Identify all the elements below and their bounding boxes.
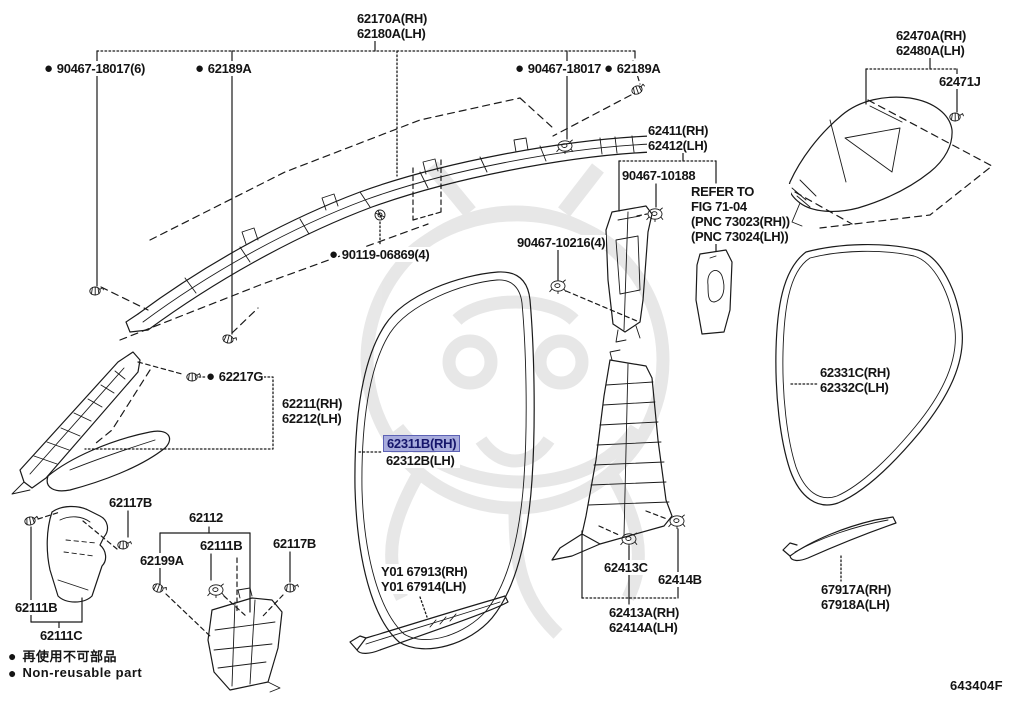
non-reusable-legend: ● 再使用不可部品 ● Non-reusable part [8,647,142,681]
part-number-text: 62112 [188,510,224,525]
part-number-text: 62189A [616,61,662,76]
part-label-62331c-62332c[interactable]: 62331C(RH)62332C(LH) [819,365,891,395]
non-reusable-bullet-icon: ● [206,369,215,384]
diagram-code: 643404F [950,678,1003,693]
part-number-text: 62470A(RH) [895,28,967,43]
part-number-text: 62117B [108,495,153,510]
part-number-text: 62170A(RH) [356,11,428,26]
part-label-62211-62212[interactable]: 62211(RH)62212(LH) [281,396,343,426]
part-number-text: 62212(LH) [281,411,343,426]
parts-diagram-page: 62170A(RH)62180A(LH)●90467-18017(6)●6218… [0,0,1024,707]
part-label-62117b-top[interactable]: 62117B [108,495,153,510]
part-number-text-highlighted: 62311B(RH) [383,435,460,452]
non-reusable-bullet-icon: ● [195,61,204,76]
non-reusable-bullet-icon: ● [329,247,338,262]
part-number-text: 62312B(LH) [385,453,460,468]
part-number-text: 90467-10188 [621,168,696,183]
non-reusable-bullet-icon: ● [8,665,16,681]
part-label-62413a-62414a[interactable]: 62413A(RH)62414A(LH) [608,605,680,635]
non-reusable-bullet-icon: ● [604,61,613,76]
part-label-62111b-left[interactable]: 62111B [14,600,58,615]
part-label-62311b-62312b[interactable]: 62311B(RH)62312B(LH) [385,437,460,468]
part-number-text: 62471J [938,74,982,89]
part-label-62413c[interactable]: 62413C [603,560,649,575]
part-label-62111c[interactable]: 62111C [39,628,83,643]
part-number-text: 62414A(LH) [608,620,680,635]
part-number-text: 62480A(LH) [895,43,967,58]
part-label-62217g[interactable]: ●62217G [206,369,264,384]
part-number-text: 62180A(LH) [356,26,428,41]
part-label-62170a-62180a[interactable]: 62170A(RH)62180A(LH) [356,11,428,41]
part-number-text: 62189A [207,61,253,76]
part-number-text: 62413A(RH) [608,605,680,620]
part-number-text: FIG 71-04 [690,199,791,214]
part-label-62414b[interactable]: 62414B [657,572,703,587]
part-label-y01-67913-67914[interactable]: Y01 67913(RH)Y01 67914(LH) [380,564,468,594]
part-number-text: 62331C(RH) [819,365,891,380]
part-label-62199a[interactable]: 62199A [139,553,185,568]
part-number-text: 90467-18017 [527,61,602,76]
part-label-62189a-front[interactable]: ●62189A [195,61,253,76]
part-number-text: Y01 67914(LH) [380,579,468,594]
part-number-text: 62111B [14,600,58,615]
part-number-text: (PNC 73024(LH)) [690,229,791,244]
part-label-62411-62412[interactable]: 62411(RH)62412(LH) [647,123,709,153]
part-label-90467-10216-4[interactable]: 90467-10216(4) [516,235,606,250]
legend-row-jp: ● 再使用不可部品 [8,647,142,664]
legend-en-text: Non-reusable part [22,665,142,680]
part-label-62470a-62480a[interactable]: 62470A(RH)62480A(LH) [895,28,967,58]
part-label-90119-06869-4[interactable]: ●90119-06869(4) [329,247,430,262]
part-label-refer-fig[interactable]: REFER TOFIG 71-04(PNC 73023(RH))(PNC 730… [690,184,791,244]
part-number-text: 62332C(LH) [819,380,891,395]
part-number-text: 62111B [199,538,243,553]
part-number-text: 62413C [603,560,649,575]
part-number-text: 62414B [657,572,703,587]
part-label-90467-10188[interactable]: 90467-10188 [621,168,696,183]
part-label-90467-18017-6[interactable]: ●90467-18017(6) [44,61,146,76]
part-number-text: 67917A(RH) [820,582,892,597]
part-label-62471j[interactable]: 62471J [938,74,982,89]
part-label-62112[interactable]: 62112 [188,510,224,525]
part-label-62117b-right[interactable]: 62117B [272,536,317,551]
part-number-text: 62411(RH) [647,123,709,138]
non-reusable-bullet-icon: ● [8,648,16,664]
part-number-text: 62211(RH) [281,396,343,411]
part-label-62111b-mid[interactable]: 62111B [199,538,243,553]
part-number-text: 90119-06869(4) [341,247,431,262]
non-reusable-bullet-icon: ● [515,61,524,76]
non-reusable-bullet-icon: ● [44,61,53,76]
legend-jp-text: 再使用不可部品 [22,646,117,665]
part-number-text: 67918A(LH) [820,597,892,612]
part-label-67917a-67918a[interactable]: 67917A(RH)67918A(LH) [820,582,892,612]
part-number-text: 90467-18017(6) [56,61,146,76]
part-number-text: 90467-10216(4) [516,235,606,250]
part-number-text: 62412(LH) [647,138,709,153]
part-number-text: 62111C [39,628,83,643]
part-label-90467-18017[interactable]: ●90467-18017 [515,61,602,76]
part-number-text: 62117B [272,536,317,551]
part-number-text: (PNC 73023(RH)) [690,214,791,229]
legend-row-en: ● Non-reusable part [8,664,142,681]
part-number-text: Y01 67913(RH) [380,564,468,579]
part-number-text: 62217G [218,369,264,384]
part-number-text: 62199A [139,553,185,568]
part-number-text: REFER TO [690,184,791,199]
part-label-62189a-rear[interactable]: ●62189A [604,61,662,76]
label-layer: 62170A(RH)62180A(LH)●90467-18017(6)●6218… [0,0,1024,707]
